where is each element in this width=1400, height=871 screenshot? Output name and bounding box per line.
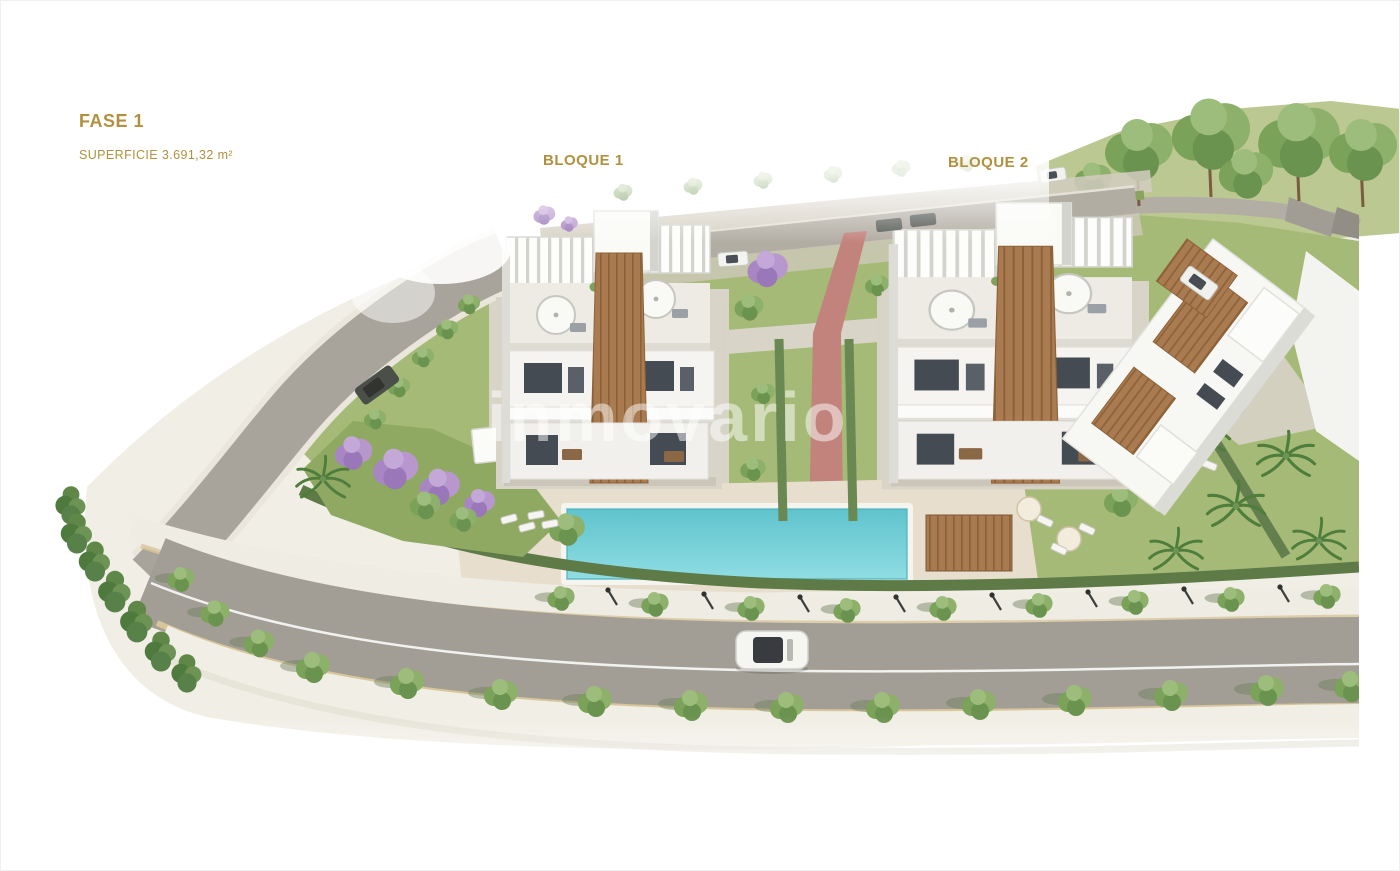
wood-deck: [926, 515, 1012, 571]
white-car: [736, 631, 808, 674]
site-render: [1, 1, 1400, 871]
parked-car: [718, 251, 749, 267]
block2-label: BLOQUE 2: [948, 154, 1029, 171]
block1-label: BLOQUE 1: [543, 152, 624, 169]
apartment-block-1: [496, 211, 722, 489]
site-plan-page: FASE 1 SUPERFICIE 3.691,32 m² BLOQUE 1 B…: [0, 0, 1400, 871]
surface-label: SUPERFICIE 3.691,32 m²: [79, 148, 233, 162]
phase-label: FASE 1: [79, 111, 144, 132]
